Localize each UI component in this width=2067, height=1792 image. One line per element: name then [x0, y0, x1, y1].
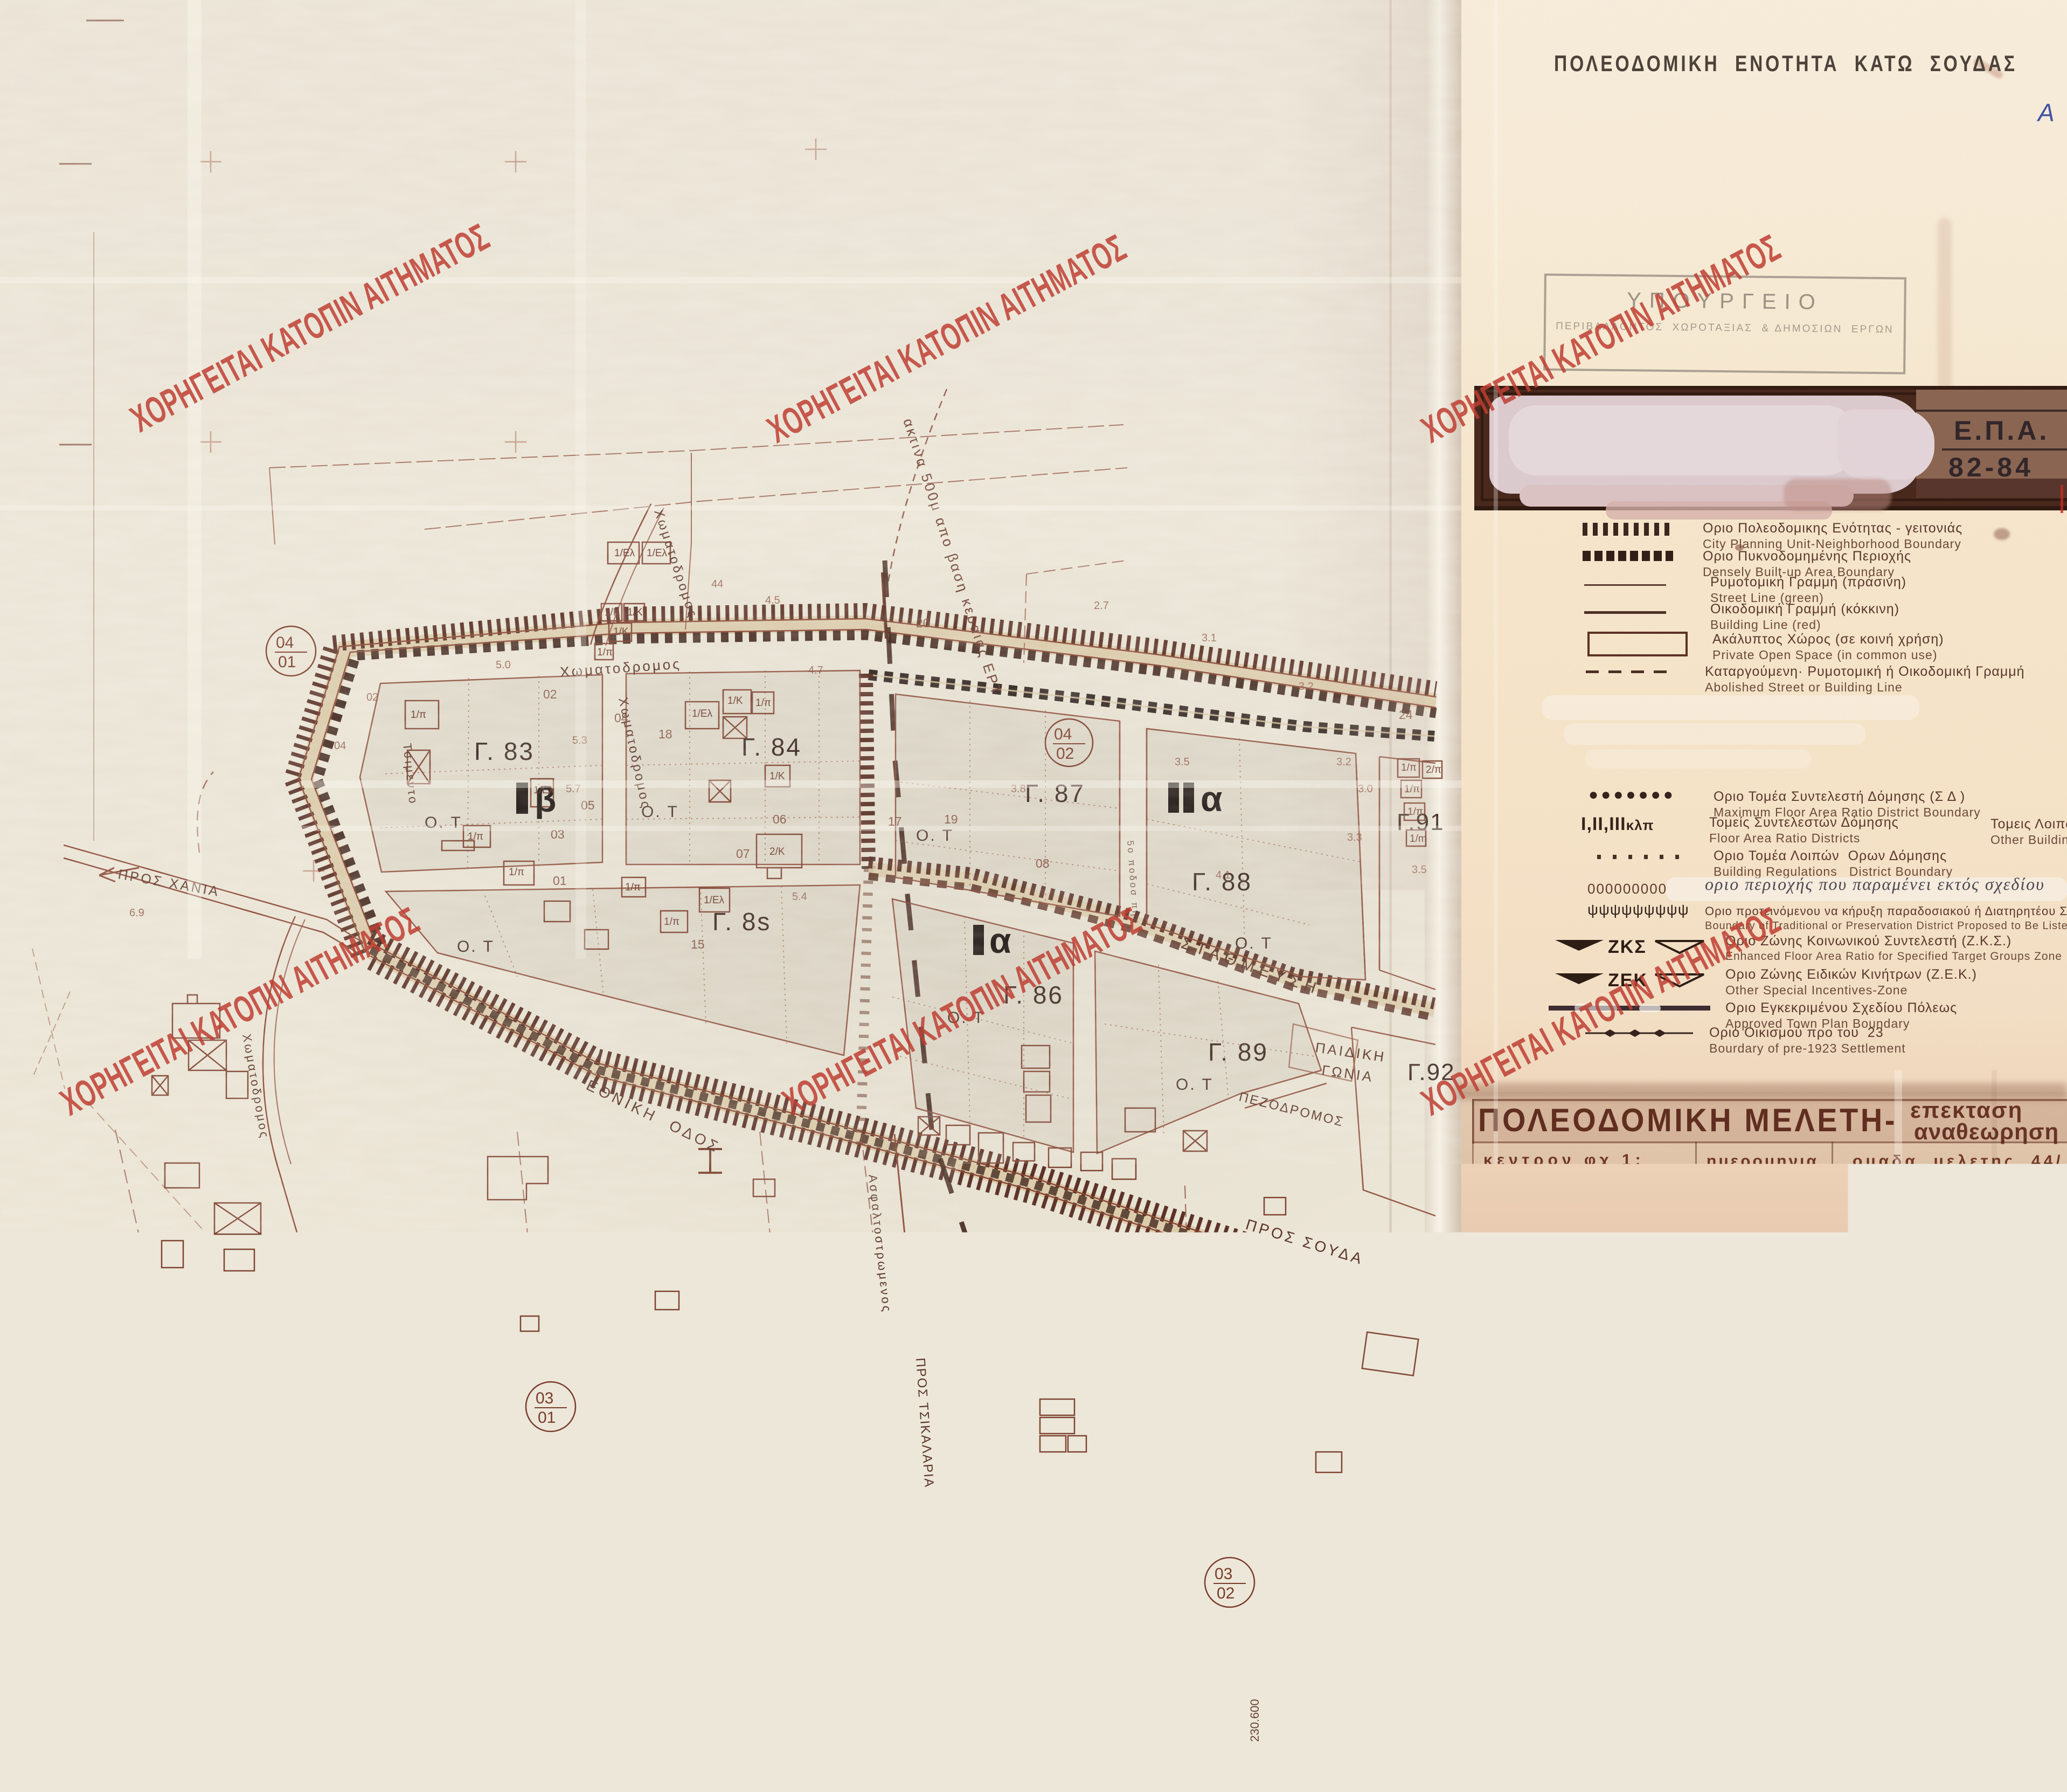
svg-text:1/Ελ: 1/Ελ	[658, 1296, 679, 1307]
svg-text:1/Ελ: 1/Ελ	[949, 1130, 970, 1141]
svg-text:2315.00: 2315.00	[1751, 1262, 1761, 1287]
svg-text:07: 07	[736, 847, 750, 861]
svg-text:1/π: 1/π	[411, 709, 426, 721]
svg-text:1/π: 1/π	[1070, 1439, 1086, 1450]
svg-text:02: 02	[366, 691, 378, 703]
svg-text:Γ. 83: Γ. 83	[474, 737, 535, 765]
svg-text:8.0: 8.0	[625, 1354, 640, 1366]
svg-text:7.3: 7.3	[280, 1101, 295, 1113]
svg-text:1/π: 1/π	[625, 882, 641, 893]
svg-text:04: 04	[996, 1109, 1010, 1123]
svg-text:ΠΡΟΣ ΧΑΝΙΑ: ΠΡΟΣ ΧΑΝΙΑ	[117, 867, 221, 900]
svg-text:5.8: 5.8	[833, 1004, 848, 1016]
svg-text:3.5: 3.5	[1175, 756, 1190, 768]
svg-text:02: 02	[965, 1104, 979, 1118]
svg-text:09: 09	[1133, 1053, 1147, 1067]
svg-text:02: 02	[1099, 1293, 1113, 1307]
svg-text:04: 04	[463, 1196, 477, 1210]
svg-text:5.4: 5.4	[792, 891, 807, 903]
svg-text:5.7: 5.7	[841, 977, 856, 989]
svg-text:05: 05	[604, 1390, 618, 1404]
svg-text:1/Ελ: 1/Ελ	[1044, 1439, 1065, 1450]
svg-text:1/Κ: 1/Κ	[1015, 1147, 1031, 1158]
svg-text:3.1: 3.1	[1202, 632, 1217, 644]
svg-text:α: α	[989, 921, 1011, 960]
svg-text:2/π: 2/π	[491, 1165, 507, 1177]
svg-text:1/Ελ: 1/Ελ	[1044, 1402, 1065, 1414]
svg-text:08: 08	[1036, 856, 1050, 870]
svg-text:6.5: 6.5	[1229, 1327, 1244, 1339]
svg-text:8.3: 8.3	[604, 1414, 619, 1426]
svg-text:02: 02	[226, 961, 238, 973]
svg-text:03: 03	[905, 1595, 919, 1609]
svg-text:1/π: 1/π	[509, 867, 524, 878]
svg-text:1/π: 1/π	[227, 1255, 243, 1266]
svg-text:6.7: 6.7	[377, 993, 392, 1005]
svg-text:7.9: 7.9	[997, 1338, 1012, 1350]
svg-text:04: 04	[276, 634, 294, 652]
svg-text:Γ. 89: Γ. 89	[1208, 1038, 1268, 1066]
svg-text:Γ. 84: Γ. 84	[741, 733, 802, 761]
svg-text:1/π: 1/π	[757, 1184, 772, 1195]
svg-text:03: 03	[507, 1314, 521, 1329]
svg-text:02: 02	[1217, 1585, 1234, 1602]
svg-text:230600: 230600	[1615, 1262, 1626, 1289]
svg-text:6.2: 6.2	[1110, 1263, 1125, 1275]
svg-text:04: 04	[1018, 1541, 1032, 1555]
svg-text:165.000: 165.000	[5, 1606, 19, 1649]
svg-text:06: 06	[773, 812, 787, 826]
svg-text:19: 19	[944, 812, 958, 826]
svg-text:1/π: 1/π	[664, 916, 679, 928]
svg-text:8.5: 8.5	[744, 1532, 759, 1544]
svg-text:1/Ελ: 1/Ελ	[1114, 1163, 1135, 1174]
svg-text:01: 01	[553, 874, 567, 888]
svg-text:15: 15	[691, 937, 705, 951]
svg-text:7.4: 7.4	[345, 1435, 360, 1447]
svg-text:02: 02	[1056, 745, 1074, 763]
svg-text:Ασφαλτοστρωμενος: Ασφαλτοστρωμενος	[866, 1174, 894, 1314]
svg-text:165600: 165600	[1527, 1299, 1557, 1310]
svg-text:1/π: 1/π	[1027, 1076, 1043, 1087]
svg-text:ΠΡΟΣ ΤΣΙΚΑΛΑΡΙΑ: ΠΡΟΣ ΤΣΙΚΑΛΑΡΙΑ	[913, 1358, 937, 1489]
svg-text:7.2: 7.2	[162, 1419, 177, 1431]
svg-text:1/Ελ: 1/Ελ	[981, 1137, 1002, 1148]
svg-text:04: 04	[1054, 725, 1072, 743]
svg-text:17: 17	[1424, 1002, 1438, 1016]
svg-text:01: 01	[538, 1409, 556, 1427]
svg-text:12: 12	[652, 970, 666, 984]
svg-text:1/π: 1/π	[1083, 1157, 1099, 1168]
svg-text:230.150: 230.150	[1609, 1499, 1619, 1532]
svg-text:6.9: 6.9	[129, 907, 144, 919]
svg-text:01: 01	[242, 1379, 256, 1393]
svg-text:230150: 230150	[1541, 1262, 1551, 1287]
svg-text:231050: 231050	[1683, 1262, 1693, 1287]
svg-text:165.000: 165.000	[1524, 1392, 1557, 1402]
svg-text:7.4: 7.4	[1433, 1419, 1448, 1431]
svg-text:Ο. Τ: Ο. Τ	[1235, 935, 1273, 952]
svg-text:05: 05	[1053, 1185, 1067, 1199]
svg-text:1/π: 1/π	[1051, 1152, 1066, 1164]
svg-text:Ο. Τ: Ο. Τ	[457, 938, 495, 956]
svg-text:Ο. Τ: Ο. Τ	[1176, 1076, 1213, 1094]
svg-text:164400: 164400	[1524, 1485, 1555, 1495]
svg-text:3.5: 3.5	[1423, 918, 1438, 930]
svg-text:1/Ελ: 1/Ελ	[692, 708, 713, 719]
svg-text:04: 04	[614, 711, 628, 725]
svg-text:7.2: 7.2	[932, 1096, 947, 1108]
svg-text:01: 01	[129, 1263, 141, 1275]
svg-text:164400: 164400	[1761, 1485, 1792, 1495]
svg-text:03: 03	[536, 1389, 553, 1407]
svg-text:8.5: 8.5	[1196, 1613, 1211, 1625]
svg-text:7.1: 7.1	[647, 1177, 662, 1188]
svg-text:1/π: 1/π	[597, 647, 613, 658]
svg-text:04: 04	[334, 740, 346, 752]
svg-text:7.1: 7.1	[777, 1053, 792, 1064]
svg-text:02: 02	[543, 687, 557, 701]
svg-text:4.7: 4.7	[808, 665, 823, 676]
svg-text:1/Κ: 1/Κ	[613, 626, 629, 638]
svg-text:1/Ελ: 1/Ελ	[704, 895, 725, 906]
svg-text:1/Ελ: 1/Ελ	[1044, 1421, 1065, 1432]
svg-text:01: 01	[927, 1158, 941, 1172]
svg-text:1/Κ: 1/Κ	[1029, 1102, 1045, 1113]
svg-text:01: 01	[278, 653, 296, 671]
svg-text:Γ. 8s: Γ. 8s	[712, 908, 771, 936]
svg-text:1/π: 1/π	[230, 1077, 245, 1088]
svg-text:165.000: 165.000	[1761, 1392, 1794, 1402]
svg-text:2/π: 2/π	[1426, 764, 1441, 776]
svg-text:165600: 165600	[1757, 1299, 1788, 1310]
svg-text:1/π: 1/π	[1025, 1051, 1041, 1062]
svg-text:ΖΚΣ: ΖΚΣ	[1608, 937, 1647, 957]
svg-text:8.5: 8.5	[1142, 1403, 1157, 1415]
svg-text:1/Κ: 1/Κ	[727, 695, 743, 707]
svg-text:18: 18	[658, 727, 672, 741]
svg-text:2/π: 2/π	[1129, 1115, 1145, 1126]
svg-text:16: 16	[1250, 1153, 1264, 1167]
svg-text:06: 06	[717, 1239, 731, 1253]
svg-text:6.2: 6.2	[625, 1031, 640, 1043]
svg-text:13: 13	[678, 991, 692, 1005]
svg-text:7.6: 7.6	[841, 1295, 856, 1307]
svg-text:14: 14	[1266, 1094, 1280, 1108]
svg-text:5.0: 5.0	[496, 659, 511, 671]
svg-text:16: 16	[706, 963, 720, 977]
svg-text:13: 13	[712, 1049, 726, 1063]
svg-text:4.1: 4.1	[1216, 869, 1231, 881]
svg-text:03: 03	[366, 1261, 380, 1275]
svg-text:1/π: 1/π	[468, 831, 483, 842]
svg-text:1/π: 1/π	[755, 697, 771, 709]
svg-text:230.600: 230.600	[1248, 1699, 1261, 1742]
svg-text:2/Κ: 2/Κ	[769, 846, 785, 857]
svg-text:03: 03	[458, 1047, 470, 1059]
